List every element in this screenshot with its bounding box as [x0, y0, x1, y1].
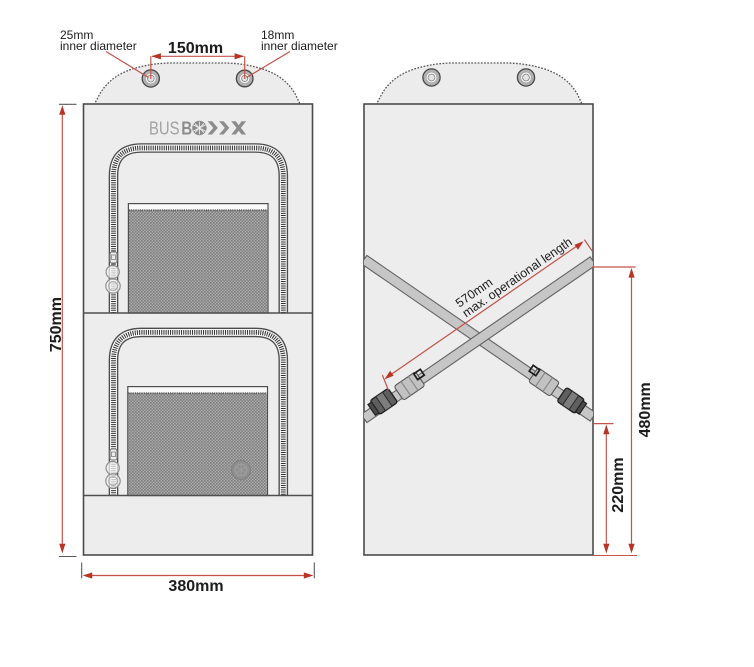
svg-text:220mm: 220mm [610, 457, 627, 512]
svg-text:BUS: BUS [149, 119, 180, 139]
svg-text:480mm: 480mm [637, 382, 654, 437]
svg-text:150mm: 150mm [168, 40, 223, 57]
svg-text:inner diameter: inner diameter [60, 39, 137, 53]
svg-text:380mm: 380mm [168, 578, 223, 595]
svg-text:B: B [181, 119, 192, 139]
svg-text:inner diameter: inner diameter [261, 39, 338, 53]
svg-text:750mm: 750mm [48, 297, 65, 352]
